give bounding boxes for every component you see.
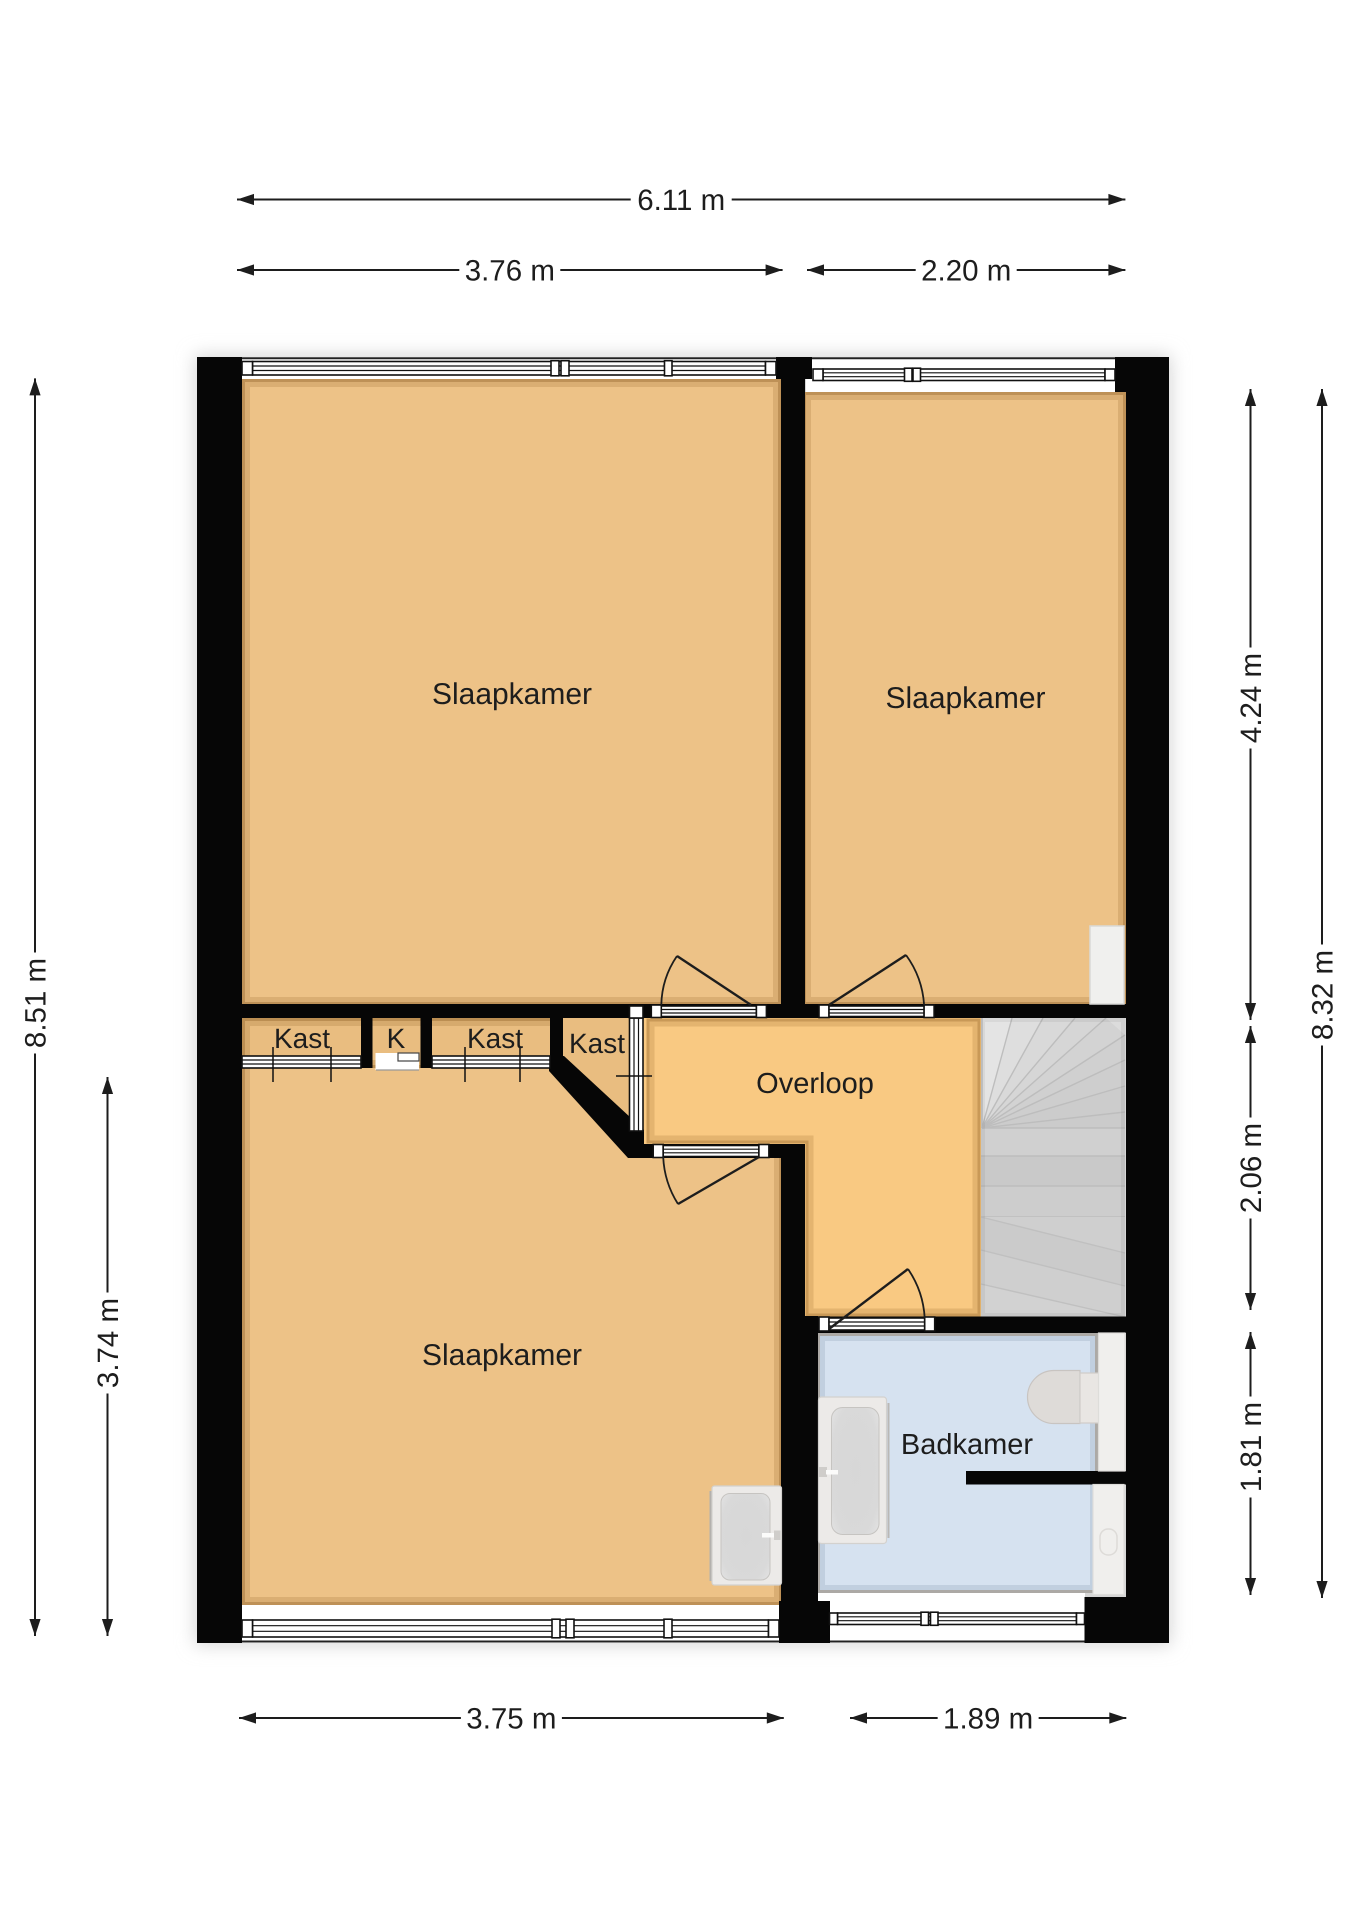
svg-text:3.75 m: 3.75 m bbox=[466, 1703, 556, 1736]
svg-text:3.76 m: 3.76 m bbox=[465, 255, 555, 288]
svg-text:Kast: Kast bbox=[274, 1023, 330, 1054]
svg-text:1.81 m: 1.81 m bbox=[1235, 1402, 1268, 1492]
svg-text:8.32 m: 8.32 m bbox=[1307, 950, 1340, 1040]
svg-text:6.11 m: 6.11 m bbox=[637, 184, 725, 217]
svg-text:8.51 m: 8.51 m bbox=[20, 958, 53, 1048]
svg-text:K: K bbox=[387, 1023, 406, 1054]
svg-text:3.74 m: 3.74 m bbox=[92, 1298, 125, 1388]
svg-text:Badkamer: Badkamer bbox=[901, 1429, 1034, 1461]
svg-text:Slaapkamer: Slaapkamer bbox=[422, 1339, 582, 1372]
svg-text:Slaapkamer: Slaapkamer bbox=[885, 682, 1045, 715]
svg-text:Overloop: Overloop bbox=[756, 1068, 874, 1100]
svg-text:4.24 m: 4.24 m bbox=[1235, 653, 1268, 743]
svg-text:2.20 m: 2.20 m bbox=[921, 255, 1011, 288]
svg-text:Slaapkamer: Slaapkamer bbox=[432, 678, 592, 711]
svg-text:Kast: Kast bbox=[467, 1023, 523, 1054]
svg-text:2.06 m: 2.06 m bbox=[1235, 1123, 1268, 1213]
svg-text:1.89 m: 1.89 m bbox=[943, 1703, 1033, 1736]
svg-text:Kast: Kast bbox=[569, 1028, 625, 1059]
